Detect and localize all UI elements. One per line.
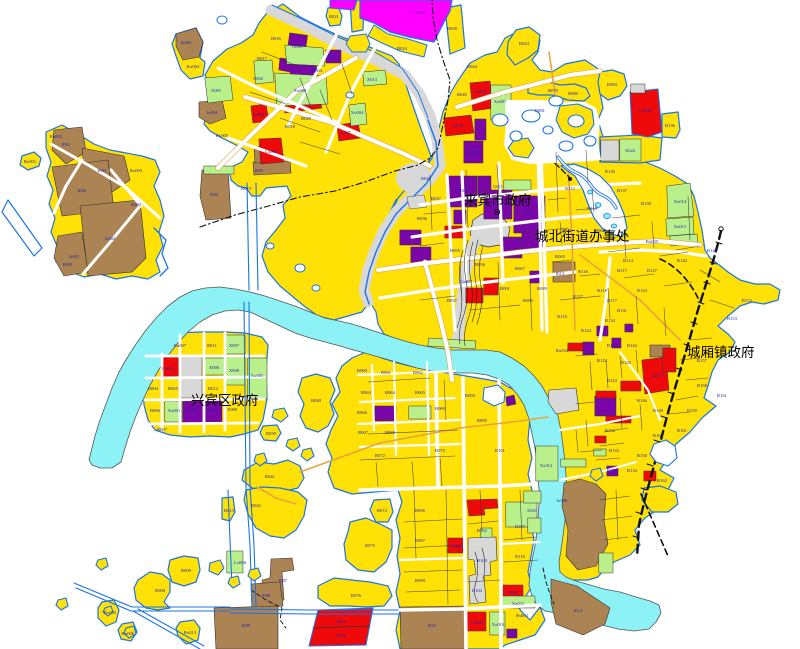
- svg-text:Rx013: Rx013: [184, 630, 197, 635]
- svg-text:I014: I014: [574, 608, 583, 613]
- svg-text:R057: R057: [447, 298, 458, 303]
- svg-text:R127: R127: [573, 294, 584, 299]
- svg-text:G009: G009: [468, 150, 479, 155]
- svg-text:R123: R123: [607, 378, 618, 383]
- svg-text:Xx011: Xx011: [512, 601, 525, 606]
- svg-text:Ix006: Ix006: [557, 498, 568, 503]
- svg-text:R063: R063: [361, 390, 372, 395]
- svg-text:R127: R127: [647, 268, 658, 273]
- svg-text:Rx003: Rx003: [130, 168, 143, 173]
- svg-text:I007: I007: [279, 578, 288, 583]
- svg-text:R136: R136: [665, 123, 676, 128]
- svg-text:R061: R061: [381, 370, 392, 375]
- svg-text:Cx003: Cx003: [265, 149, 278, 154]
- svg-text:X002: X002: [253, 76, 264, 81]
- svg-text:R137: R137: [617, 188, 628, 193]
- svg-text:R065: R065: [415, 390, 426, 395]
- svg-text:R158: R158: [697, 383, 708, 388]
- svg-text:R161: R161: [717, 393, 728, 398]
- svg-text:R099: R099: [415, 578, 426, 583]
- svg-text:X001: X001: [211, 88, 222, 93]
- svg-text:R143: R143: [637, 288, 648, 293]
- svg-text:R160: R160: [653, 433, 664, 438]
- svg-text:R076: R076: [351, 593, 362, 598]
- svg-text:Xx005: Xx005: [251, 373, 264, 378]
- svg-text:X006: X006: [209, 365, 220, 370]
- svg-text:R102: R102: [477, 528, 488, 533]
- svg-text:R114: R114: [623, 258, 633, 263]
- svg-text:R090: R090: [523, 298, 534, 303]
- svg-text:X022: X022: [625, 148, 636, 153]
- svg-text:R060: R060: [357, 368, 368, 373]
- svg-text:R039: R039: [266, 431, 277, 436]
- svg-text:B020: B020: [301, 116, 312, 121]
- svg-text:B024: B024: [397, 46, 408, 51]
- svg-text:G001: G001: [187, 408, 198, 413]
- svg-text:Xx014: Xx014: [674, 199, 687, 204]
- svg-text:B019: B019: [241, 186, 252, 191]
- svg-text:I004: I004: [210, 192, 219, 197]
- svg-text:B004: B004: [312, 68, 323, 73]
- svg-text:Rx006: Rx006: [122, 631, 135, 636]
- svg-text:B017: B017: [257, 56, 268, 61]
- svg-text:R162: R162: [657, 478, 668, 483]
- svg-text:R144: R144: [627, 343, 638, 348]
- svg-text:R080: R080: [568, 91, 579, 96]
- svg-text:R009: R009: [181, 568, 192, 573]
- svg-text:R066: R066: [357, 410, 368, 415]
- svg-text:R065: R065: [555, 254, 566, 259]
- svg-text:R107: R107: [515, 524, 526, 529]
- svg-text:X023: X023: [561, 228, 572, 233]
- svg-text:R146: R146: [637, 398, 648, 403]
- svg-text:R001: R001: [63, 262, 74, 267]
- svg-text:Ix004: Ix004: [207, 110, 218, 115]
- svg-text:B021: B021: [329, 14, 340, 19]
- svg-text:C008: C008: [451, 544, 462, 549]
- svg-text:Ix002: Ix002: [105, 236, 116, 241]
- svg-text:R113: R113: [587, 206, 597, 211]
- svg-text:I002: I002: [78, 188, 87, 193]
- svg-text:R101: R101: [495, 448, 506, 453]
- svg-text:G002: G002: [207, 408, 218, 413]
- svg-text:R081: R081: [535, 108, 546, 113]
- svg-text:R112: R112: [565, 186, 575, 191]
- svg-text:Cx008: Cx008: [639, 108, 652, 113]
- svg-text:Rx005: Rx005: [104, 610, 117, 615]
- svg-text:R041: R041: [265, 474, 276, 479]
- svg-text:C005: C005: [453, 123, 464, 128]
- svg-text:Ix002: Ix002: [254, 112, 265, 117]
- svg-text:Cx001: Cx001: [162, 366, 175, 371]
- svg-text:R045: R045: [457, 92, 468, 97]
- svg-text:R095: R095: [477, 418, 488, 423]
- svg-text:I013: I013: [556, 271, 565, 276]
- svg-text:R133: R133: [609, 448, 620, 453]
- svg-text:R067: R067: [358, 430, 369, 435]
- svg-text:I003: I003: [98, 168, 107, 173]
- svg-text:R047: R047: [431, 196, 442, 201]
- svg-text:G011: G011: [493, 184, 504, 189]
- svg-text:R159: R159: [687, 408, 698, 413]
- svg-text:R083: R083: [607, 82, 618, 87]
- svg-text:兴宾区政府: 兴宾区政府: [191, 393, 259, 408]
- svg-text:R142: R142: [677, 258, 688, 263]
- svg-text:R075: R075: [365, 543, 376, 548]
- svg-text:X008: X008: [229, 368, 240, 373]
- svg-text:I009: I009: [242, 623, 251, 628]
- svg-text:C004: C004: [336, 633, 347, 638]
- svg-text:I015: I015: [428, 623, 437, 628]
- svg-text:Cx007: Cx007: [460, 279, 473, 284]
- svg-text:X009: X009: [227, 407, 238, 412]
- svg-text:R124: R124: [581, 328, 592, 333]
- svg-text:R068: R068: [595, 228, 606, 233]
- svg-text:I008: I008: [262, 593, 271, 598]
- svg-text:R152: R152: [742, 298, 753, 303]
- svg-text:R048: R048: [421, 176, 432, 181]
- svg-text:R157: R157: [697, 358, 708, 363]
- svg-text:G015: G015: [523, 210, 534, 215]
- svg-text:B030: B030: [447, 26, 458, 31]
- svg-text:R094: R094: [465, 393, 476, 398]
- svg-text:Xx015: Xx015: [674, 224, 687, 229]
- svg-text:R089: R089: [537, 286, 548, 291]
- svg-text:R074: R074: [377, 508, 388, 513]
- svg-text:B055: B055: [450, 248, 461, 253]
- svg-text:R005: R005: [168, 386, 179, 391]
- svg-text:R073: R073: [435, 448, 446, 453]
- svg-text:R147: R147: [653, 373, 664, 378]
- svg-text:I005: I005: [255, 168, 264, 173]
- svg-text:R069: R069: [435, 406, 446, 411]
- svg-text:R153: R153: [727, 316, 738, 321]
- svg-text:R012: R012: [208, 386, 219, 391]
- svg-text:R120: R120: [607, 343, 618, 348]
- svg-text:R134: R134: [605, 318, 616, 323]
- svg-text:R150: R150: [637, 453, 648, 458]
- svg-text:R132: R132: [605, 428, 616, 433]
- svg-text:R067: R067: [515, 266, 526, 271]
- svg-text:C007: C007: [341, 130, 352, 135]
- svg-text:Xx007: Xx007: [494, 99, 507, 104]
- svg-text:R104: R104: [472, 588, 483, 593]
- svg-text:R002: R002: [131, 202, 142, 207]
- svg-text:Rs002: Rs002: [516, 613, 528, 618]
- svg-text:R011: R011: [207, 343, 217, 348]
- svg-text:X021: X021: [527, 508, 538, 513]
- svg-text:R036: R036: [417, 216, 428, 221]
- svg-text:城北街道办事处: 城北街道办事处: [535, 229, 630, 244]
- svg-text:G010: G010: [457, 188, 468, 193]
- svg-text:Xx004: Xx004: [351, 110, 364, 115]
- svg-text:B018: B018: [285, 124, 296, 129]
- svg-text:R138: R138: [641, 201, 652, 206]
- svg-text:R131: R131: [617, 308, 628, 313]
- svg-text:R056: R056: [475, 262, 486, 267]
- svg-text:R149: R149: [653, 408, 664, 413]
- svg-text:R068: R068: [385, 430, 396, 435]
- svg-text:R079: R079: [548, 88, 559, 93]
- svg-text:Rx002: Rx002: [50, 134, 63, 139]
- svg-text:R091: R091: [500, 286, 511, 291]
- svg-text:R043: R043: [519, 41, 530, 46]
- svg-text:Cx005: Cx005: [475, 89, 488, 94]
- svg-text:R044: R044: [467, 64, 478, 69]
- svg-text:C010: C010: [508, 590, 519, 595]
- svg-text:I003: I003: [337, 619, 346, 624]
- svg-text:Xx001: Xx001: [168, 408, 181, 413]
- svg-text:Xx003: Xx003: [294, 88, 307, 93]
- svg-text:R096: R096: [415, 508, 426, 513]
- svg-text:X012: X012: [329, 54, 340, 59]
- svg-text:Xx010: Xx010: [492, 622, 505, 627]
- svg-text:Rx001: Rx001: [24, 159, 37, 164]
- svg-text:X013: X013: [367, 77, 378, 82]
- svg-text:R103: R103: [477, 558, 488, 563]
- svg-text:B006: B006: [150, 408, 161, 413]
- svg-text:B007: B007: [157, 427, 168, 432]
- svg-text:来宾市政府: 来宾市政府: [464, 192, 532, 208]
- svg-text:R062: R062: [413, 370, 424, 375]
- svg-text:E003: E003: [415, 10, 425, 15]
- svg-text:Cx002: Cx002: [471, 620, 484, 625]
- svg-text:R117: R117: [607, 298, 617, 303]
- svg-text:Ix003: Ix003: [181, 40, 192, 45]
- svg-text:G003: G003: [292, 44, 303, 49]
- svg-text:Rx005: Rx005: [216, 133, 229, 138]
- svg-text:R118: R118: [597, 288, 607, 293]
- svg-text:R136: R136: [605, 169, 616, 174]
- svg-text:R072: R072: [375, 453, 386, 458]
- svg-text:X007: X007: [229, 343, 240, 348]
- svg-text:R064: R064: [385, 390, 396, 395]
- svg-text:Xx012: Xx012: [540, 463, 553, 468]
- svg-text:R145: R145: [621, 360, 632, 365]
- svg-text:R126: R126: [607, 468, 618, 473]
- svg-text:R116: R116: [557, 314, 567, 319]
- svg-text:R004: R004: [148, 386, 159, 391]
- svg-text:R140: R140: [707, 248, 718, 253]
- svg-text:Ru007: Ru007: [174, 343, 187, 348]
- svg-text:R013: R013: [224, 508, 235, 513]
- svg-text:R040: R040: [311, 398, 322, 403]
- svg-text:R116: R116: [578, 269, 588, 274]
- svg-text:R134: R134: [627, 468, 638, 473]
- svg-text:Lx006: Lx006: [234, 560, 247, 565]
- svg-text:Rx035: Rx035: [646, 239, 659, 244]
- svg-text:R117: R117: [617, 268, 627, 273]
- svg-text:I001: I001: [62, 142, 71, 147]
- svg-text:R008: R008: [155, 588, 166, 593]
- svg-text:Rx034: Rx034: [556, 348, 569, 353]
- svg-text:Kx004: Kx004: [187, 64, 200, 69]
- svg-text:R161: R161: [677, 428, 688, 433]
- svg-text:R122: R122: [597, 358, 608, 363]
- svg-text:Ix001: Ix001: [69, 254, 80, 259]
- svg-text:R110: R110: [515, 554, 525, 559]
- svg-text:R097: R097: [415, 538, 426, 543]
- svg-text:B016: B016: [271, 36, 282, 41]
- svg-text:R042: R042: [251, 503, 262, 508]
